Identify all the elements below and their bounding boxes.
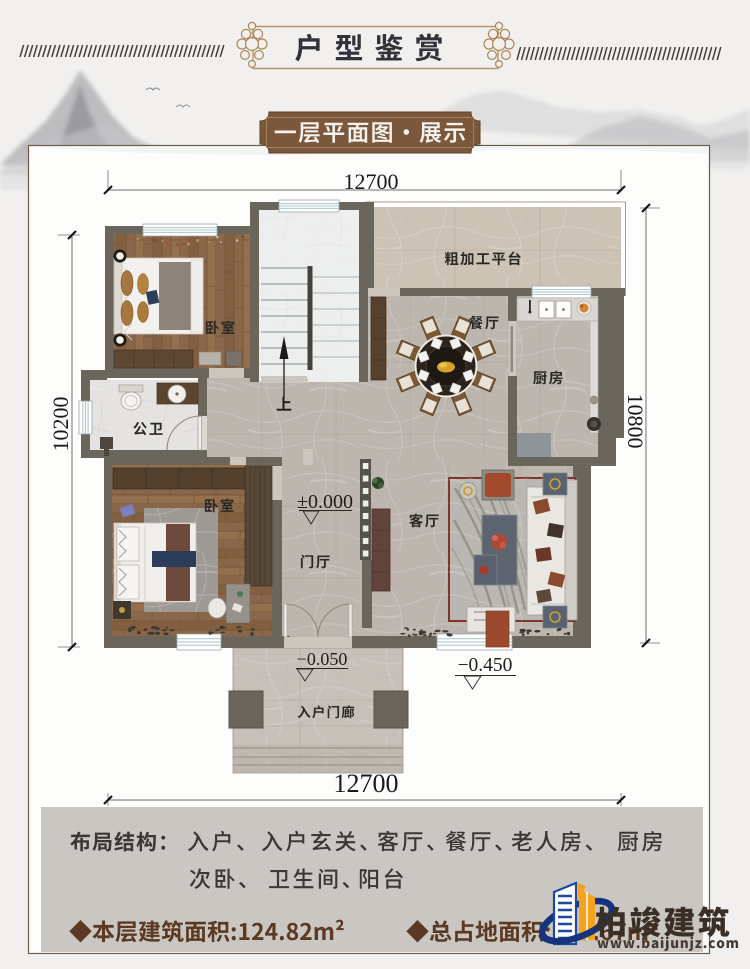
- svg-text:−0.050: −0.050: [297, 649, 348, 669]
- svg-text:12700: 12700: [334, 769, 399, 798]
- svg-text:12700: 12700: [344, 169, 399, 194]
- svg-text:−0.450: −0.450: [458, 655, 513, 676]
- svg-text:10200: 10200: [48, 397, 73, 452]
- svg-text:±0.000: ±0.000: [297, 491, 353, 513]
- svg-text:10800: 10800: [623, 394, 648, 449]
